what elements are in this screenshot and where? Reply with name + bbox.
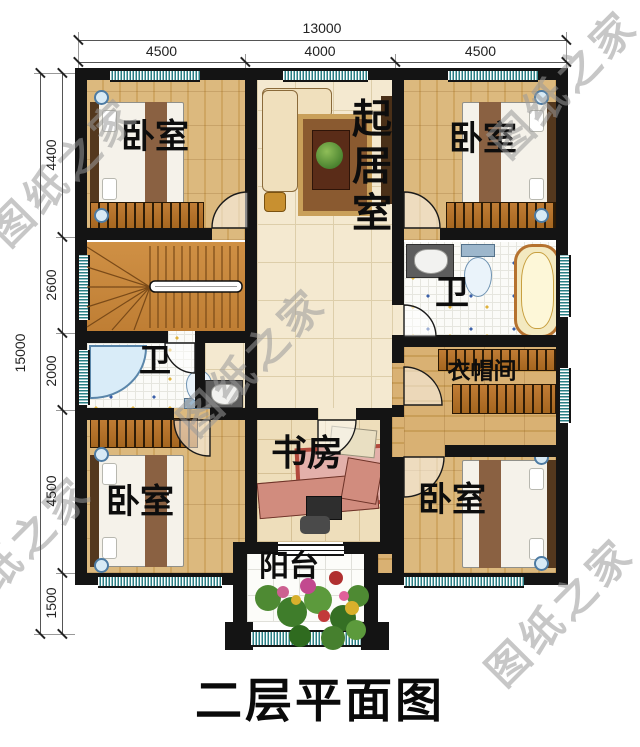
dim-line: [78, 40, 566, 41]
dim-top-seg1: 4500: [78, 43, 245, 59]
dim-top-total: 13000: [78, 20, 566, 36]
door-arc: [404, 192, 440, 228]
dim-left-total: 15000: [12, 334, 28, 373]
door-arc: [174, 420, 210, 456]
dim-line: [40, 73, 41, 634]
dim-left-seg1: 4400: [43, 139, 59, 170]
room-label-cloakroom: 衣帽间: [448, 360, 517, 383]
door-arc: [404, 367, 442, 405]
dim-top-seg2: 4000: [245, 43, 395, 59]
stairs-symbol: [87, 246, 242, 330]
floor-plan: 卧室 卧室 起居室 卫 卫 衣帽间 卧室 卧室 书房 阳台 13000 4500…: [0, 0, 640, 747]
room-label-bedroom-tr: 卧室: [449, 122, 517, 156]
plan-overlay: [0, 0, 640, 747]
room-label-bedroom-bl: 卧室: [106, 485, 174, 519]
room-label-bath-right: 卫: [435, 276, 469, 310]
dim-line: [62, 73, 63, 634]
room-label-balcony: 阳台: [259, 552, 319, 582]
plan-title: 二层平面图: [0, 662, 640, 731]
dim-left-seg5: 1500: [43, 587, 59, 618]
dim-top-seg3: 4500: [395, 43, 566, 59]
door-arc: [404, 305, 436, 337]
room-label-bath-left: 卫: [139, 344, 171, 376]
dim-left-seg2: 2600: [43, 269, 59, 300]
room-label-study: 书房: [271, 435, 343, 471]
room-label-bedroom-tl: 卧室: [121, 120, 189, 154]
room-label-living: 起居室: [348, 98, 388, 239]
room-label-bedroom-br: 卧室: [418, 483, 486, 517]
dim-line: [78, 62, 566, 63]
door-arc: [212, 192, 248, 228]
dim-left-seg3: 2000: [43, 355, 59, 386]
dim-left-seg4: 4500: [43, 475, 59, 506]
